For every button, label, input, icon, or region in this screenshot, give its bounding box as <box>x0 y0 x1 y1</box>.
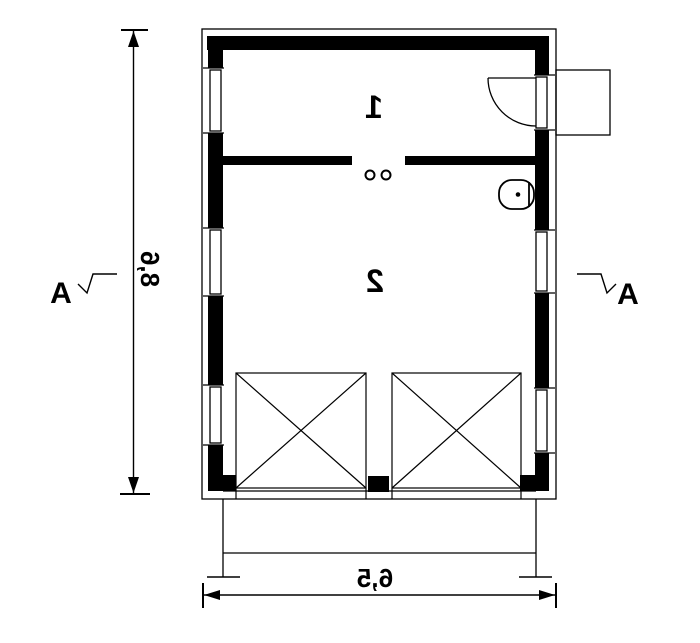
horizontal-dimension-label: 6,5 <box>345 564 405 592</box>
horizontal-dimension-value: 6,5 <box>357 565 393 591</box>
section-marker-right-symbol <box>577 274 616 293</box>
wall-openings <box>205 68 552 453</box>
garage-pier-center <box>368 476 389 492</box>
room-label-2: 2 <box>357 264 393 298</box>
garage-door-cross-symbol-left <box>236 373 366 499</box>
room-label-1: 1 <box>356 90 392 124</box>
room-2-number: 2 <box>366 265 384 297</box>
garage-door-cross-symbol-right <box>392 373 521 499</box>
interior-wall-posts <box>366 171 391 180</box>
garage-pier-left <box>208 475 236 491</box>
vertical-dimension-value: 8,6 <box>137 251 163 287</box>
section-marker-left-symbol <box>78 274 117 293</box>
interior-wall <box>223 156 535 165</box>
arrowhead-up-icon <box>128 31 139 47</box>
wc-toilet-symbol <box>499 180 534 209</box>
room-1-number: 1 <box>365 91 383 123</box>
section-marker-right-label: A <box>612 280 644 310</box>
arrowhead-left-icon <box>204 590 220 600</box>
entry-porch-outline <box>556 70 610 135</box>
garage-pier-right <box>520 475 549 491</box>
floor-plan-drawing <box>0 0 700 643</box>
arrowhead-down-icon <box>128 477 139 493</box>
floor-plan-canvas: 1 2 8,6 6,5 A A <box>0 0 700 643</box>
section-letter-right: A <box>617 280 639 310</box>
vertical-dimension-label: 8,6 <box>134 241 166 297</box>
section-marker-left-label: A <box>45 279 77 309</box>
arrowhead-right-icon <box>539 590 555 600</box>
section-letter-left: A <box>50 279 72 309</box>
